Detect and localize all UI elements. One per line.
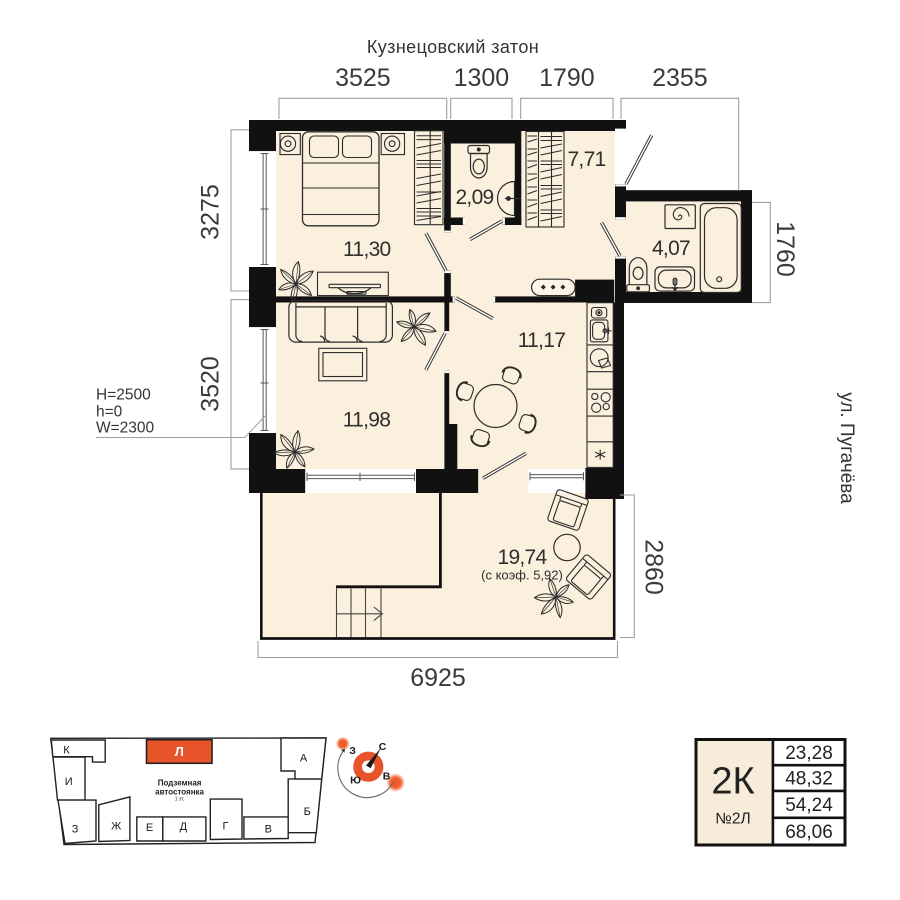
svg-text:З: З (72, 824, 79, 836)
svg-text:Подземная: Подземная (158, 779, 202, 788)
svg-text:2,09: 2,09 (455, 186, 493, 209)
svg-text:В: В (265, 824, 272, 836)
svg-text:54,24: 54,24 (785, 795, 833, 816)
svg-text:Б: Б (304, 806, 311, 818)
svg-text:2355: 2355 (652, 64, 708, 92)
svg-text:(с коэф. 5,92): (с коэф. 5,92) (481, 568, 563, 583)
svg-text:Ю: Ю (350, 775, 361, 787)
svg-text:1790: 1790 (539, 64, 595, 92)
svg-text:2860: 2860 (640, 539, 668, 595)
svg-text:1300: 1300 (454, 64, 510, 92)
svg-text:В: В (383, 771, 391, 783)
svg-text:Д: Д (180, 821, 188, 833)
svg-text:К: К (63, 744, 70, 756)
svg-text:2К: 2К (711, 761, 754, 803)
svg-text:3520: 3520 (196, 356, 224, 412)
svg-text:Ж: Ж (111, 820, 121, 832)
svg-text:48,32: 48,32 (785, 769, 833, 790)
svg-text:19,74: 19,74 (497, 546, 547, 569)
svg-text:№2Л: №2Л (715, 810, 750, 827)
svg-text:1760: 1760 (771, 221, 799, 277)
svg-text:6925: 6925 (410, 664, 466, 692)
svg-text:И: И (65, 776, 73, 788)
svg-text:68,06: 68,06 (785, 822, 833, 843)
svg-text:ул. Пугачёва: ул. Пугачёва (836, 392, 857, 504)
svg-text:Кузнецовский затон: Кузнецовский затон (367, 37, 539, 57)
svg-text:Е: Е (146, 822, 153, 834)
svg-text:W=2300: W=2300 (96, 420, 155, 437)
svg-text:4,07: 4,07 (652, 237, 690, 260)
svg-text:11,17: 11,17 (518, 329, 566, 352)
svg-text:З: З (349, 745, 356, 757)
svg-text:11,98: 11,98 (343, 409, 391, 432)
svg-text:23,28: 23,28 (785, 743, 833, 764)
svg-text:3525: 3525 (335, 64, 391, 92)
svg-text:h=0: h=0 (96, 404, 123, 421)
svg-text:Л: Л (175, 744, 184, 759)
svg-text:11,30: 11,30 (343, 238, 391, 261)
svg-text:автостоянка: автостоянка (155, 788, 204, 797)
svg-text:H=2500: H=2500 (96, 387, 151, 404)
svg-text:Г: Г (223, 820, 229, 832)
svg-text:1 эт.: 1 эт. (175, 797, 185, 803)
svg-text:А: А (300, 753, 308, 765)
svg-text:3275: 3275 (196, 184, 224, 240)
svg-text:7,71: 7,71 (567, 148, 605, 171)
svg-text:С: С (379, 741, 387, 753)
